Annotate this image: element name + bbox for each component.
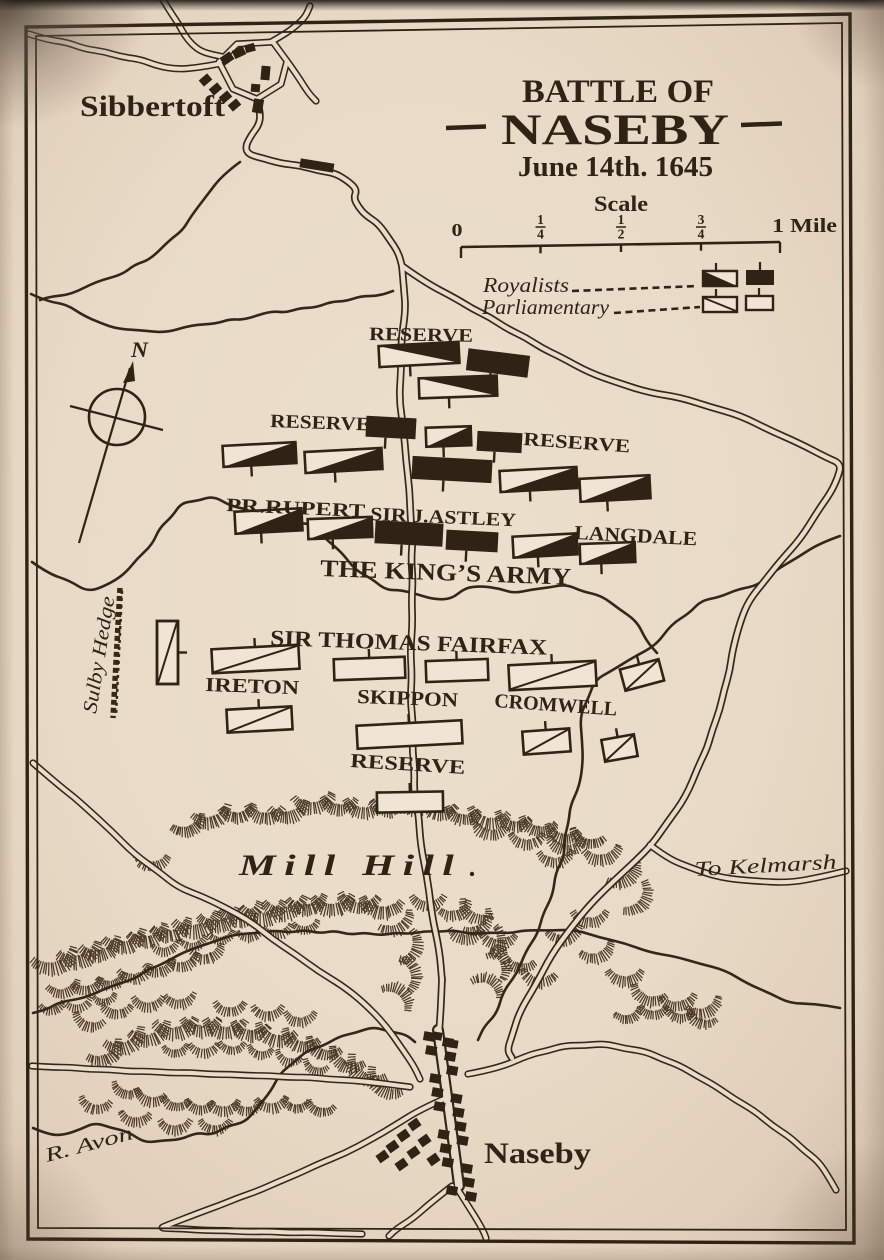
svg-text:June 14th. 1645: June 14th. 1645	[518, 152, 713, 183]
svg-text:Naseby: Naseby	[484, 1137, 591, 1170]
svg-text:0: 0	[452, 220, 463, 240]
svg-text:2: 2	[618, 227, 625, 242]
svg-text:1: 1	[537, 212, 544, 227]
svg-text:N: N	[130, 337, 149, 362]
svg-text:IRETON: IRETON	[205, 674, 300, 699]
svg-text:RESERVE: RESERVE	[369, 324, 473, 347]
svg-text:3: 3	[698, 212, 705, 227]
svg-text:Parliamentary: Parliamentary	[481, 295, 610, 319]
svg-text:Mill Hill: Mill Hill	[238, 849, 462, 882]
svg-text:SKIPPON: SKIPPON	[357, 686, 459, 712]
svg-text:4: 4	[698, 227, 705, 242]
svg-text:1 Mile: 1 Mile	[772, 215, 837, 237]
svg-text:Royalists: Royalists	[482, 273, 569, 297]
svg-text:RESERVE: RESERVE	[270, 411, 371, 435]
svg-text:Scale: Scale	[594, 191, 648, 216]
svg-text:NASEBY: NASEBY	[501, 107, 729, 154]
svg-text:4: 4	[537, 227, 544, 242]
svg-text:BATTLE OF: BATTLE OF	[522, 74, 714, 110]
